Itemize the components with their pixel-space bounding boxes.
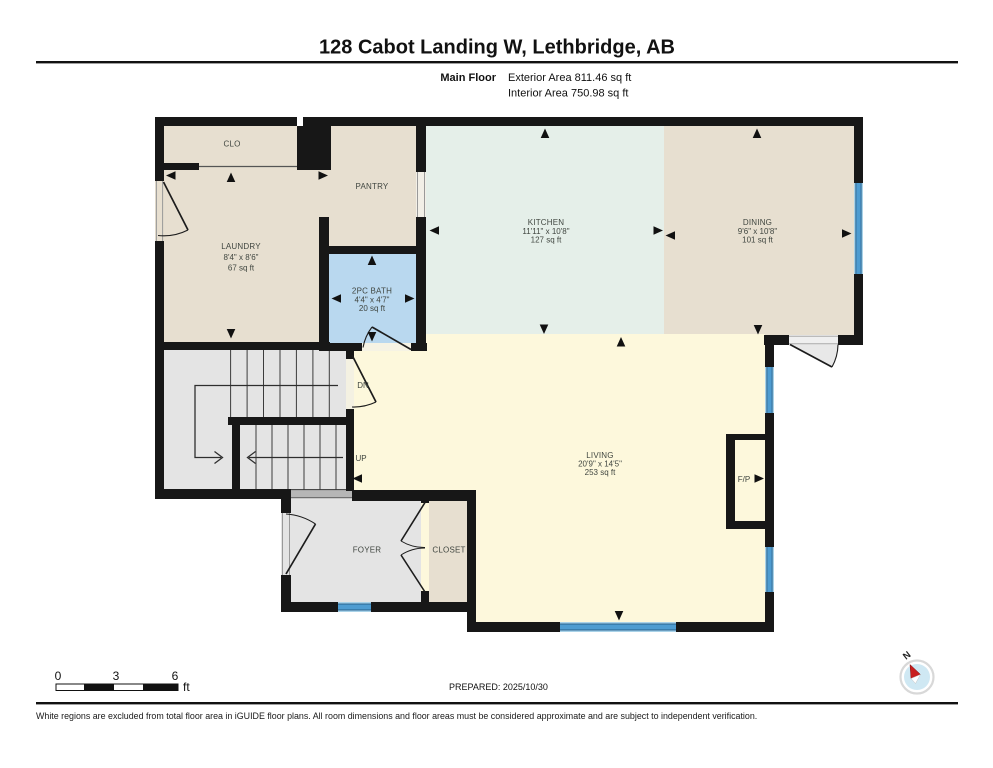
svg-text:8'4" x 8'6": 8'4" x 8'6" <box>224 253 259 262</box>
svg-text:PANTRY: PANTRY <box>356 182 389 191</box>
svg-text:253 sq ft: 253 sq ft <box>585 468 616 477</box>
svg-text:20 sq ft: 20 sq ft <box>359 304 386 313</box>
svg-text:67 sq ft: 67 sq ft <box>228 263 255 272</box>
svg-text:FOYER: FOYER <box>353 546 382 555</box>
svg-text:LAUNDRY: LAUNDRY <box>221 242 261 251</box>
svg-text:128 Cabot Landing W, Lethbridg: 128 Cabot Landing W, Lethbridge, AB <box>319 37 675 59</box>
svg-text:101 sq ft: 101 sq ft <box>742 235 773 244</box>
svg-text:CLO: CLO <box>223 139 240 148</box>
svg-text:DN: DN <box>357 381 369 390</box>
svg-text:0: 0 <box>55 669 62 683</box>
svg-text:White regions are excluded fro: White regions are excluded from total fl… <box>36 711 757 721</box>
svg-text:3: 3 <box>113 669 120 683</box>
svg-text:ft: ft <box>183 680 190 694</box>
svg-text:2PC BATH: 2PC BATH <box>352 286 392 295</box>
svg-text:PREPARED: 2025/10/30: PREPARED: 2025/10/30 <box>449 682 548 692</box>
svg-text:127 sq ft: 127 sq ft <box>531 235 562 244</box>
svg-text:UP: UP <box>355 454 366 463</box>
svg-text:F/P: F/P <box>738 475 750 484</box>
svg-text:6: 6 <box>172 669 179 683</box>
svg-text:Exterior Area 811.46 sq ft: Exterior Area 811.46 sq ft <box>508 72 631 84</box>
svg-text:Main Floor: Main Floor <box>440 72 496 84</box>
svg-text:Interior Area 750.98 sq ft: Interior Area 750.98 sq ft <box>508 88 628 100</box>
svg-text:CLOSET: CLOSET <box>432 546 465 555</box>
